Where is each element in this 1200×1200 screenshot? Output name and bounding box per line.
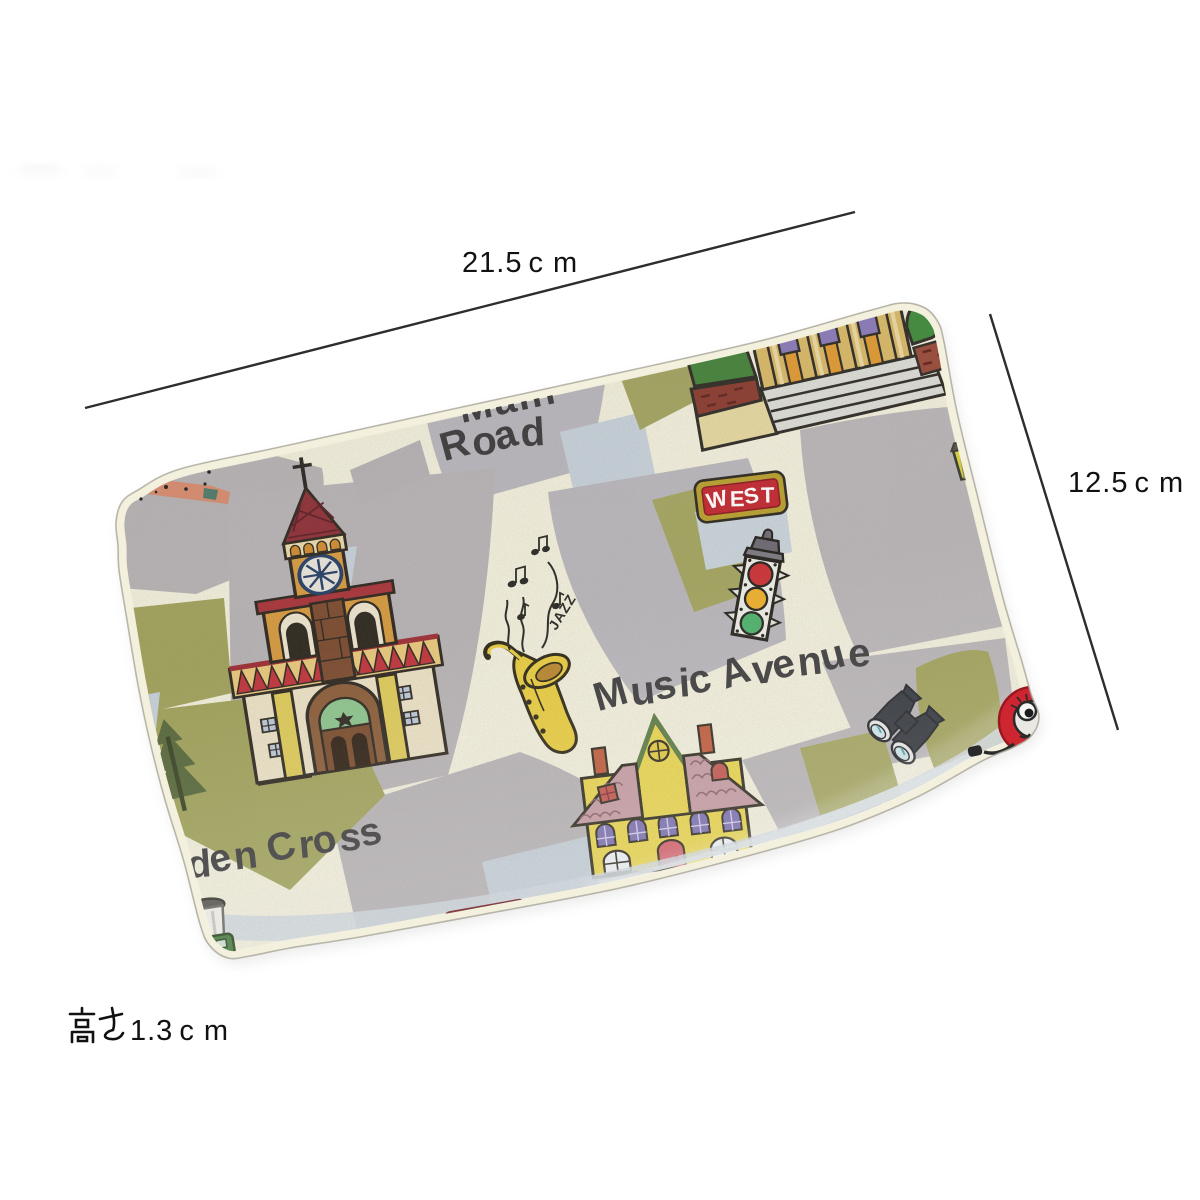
- svg-text:12.5cm: 12.5cm: [1068, 467, 1184, 499]
- svg-text:21.5cm: 21.5cm: [462, 247, 578, 279]
- svg-text:1.3cm: 1.3cm: [130, 1015, 229, 1047]
